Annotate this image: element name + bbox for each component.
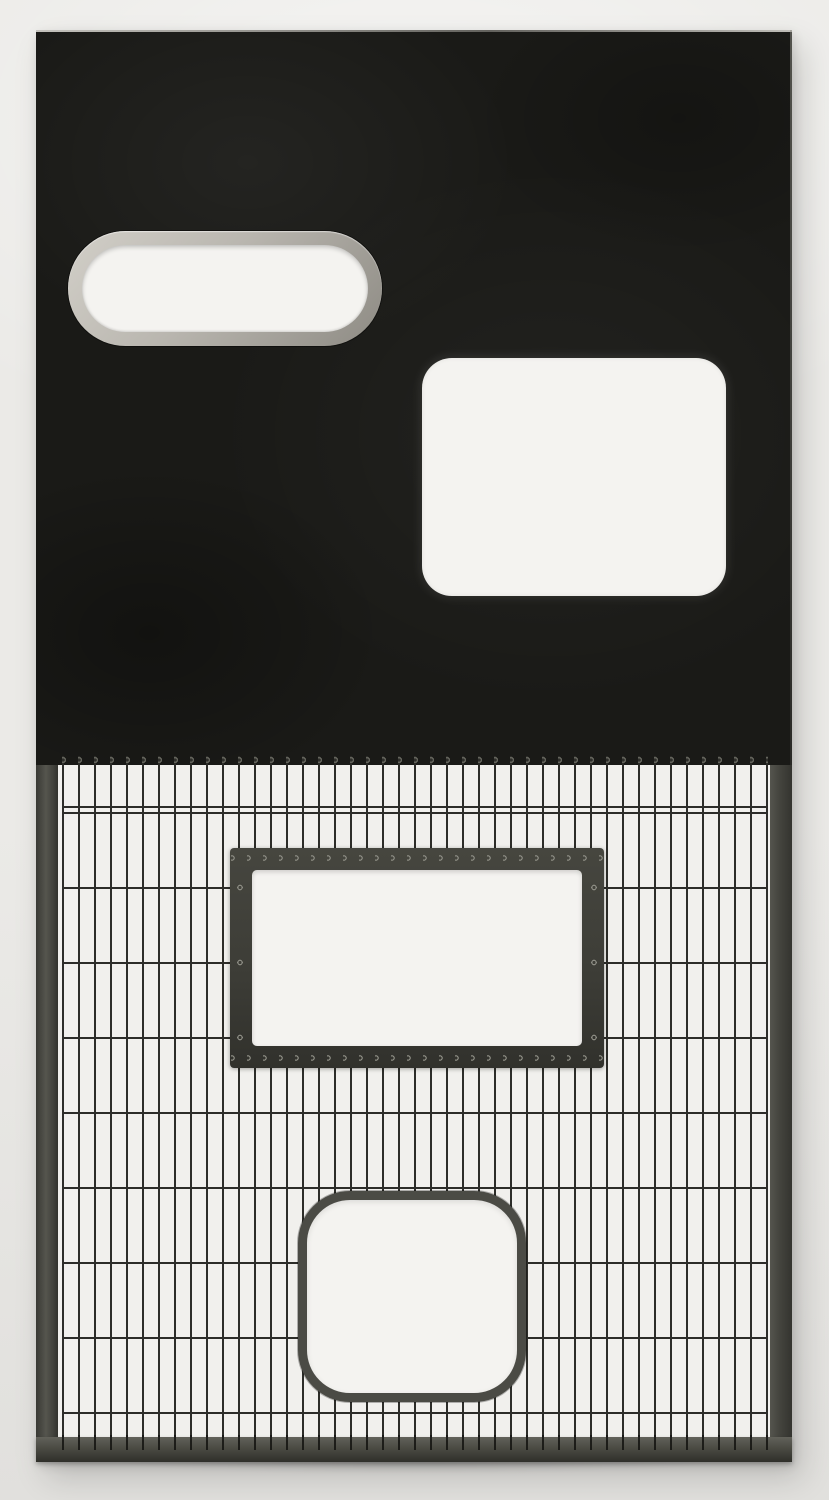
- rounded-rectangle-cutout: [422, 358, 726, 596]
- wire-grid-section: [36, 765, 792, 1437]
- bottom-rail: [36, 1437, 792, 1462]
- rounded-square-window: [298, 1191, 526, 1402]
- wire-top-loops: [62, 753, 768, 765]
- screen-panel-artwork: [36, 30, 792, 1462]
- oval-porthole-opening: [82, 245, 368, 332]
- side-bar-left: [36, 765, 58, 1437]
- solid-black-panel: [36, 30, 792, 765]
- photo-backdrop: [0, 0, 829, 1500]
- side-bar-right: [770, 765, 792, 1437]
- rectangular-window-opening: [252, 870, 582, 1046]
- oval-porthole-rim: [68, 231, 382, 346]
- wire-tips-on-rail: [62, 1435, 768, 1450]
- framed-rectangular-window: [230, 848, 604, 1068]
